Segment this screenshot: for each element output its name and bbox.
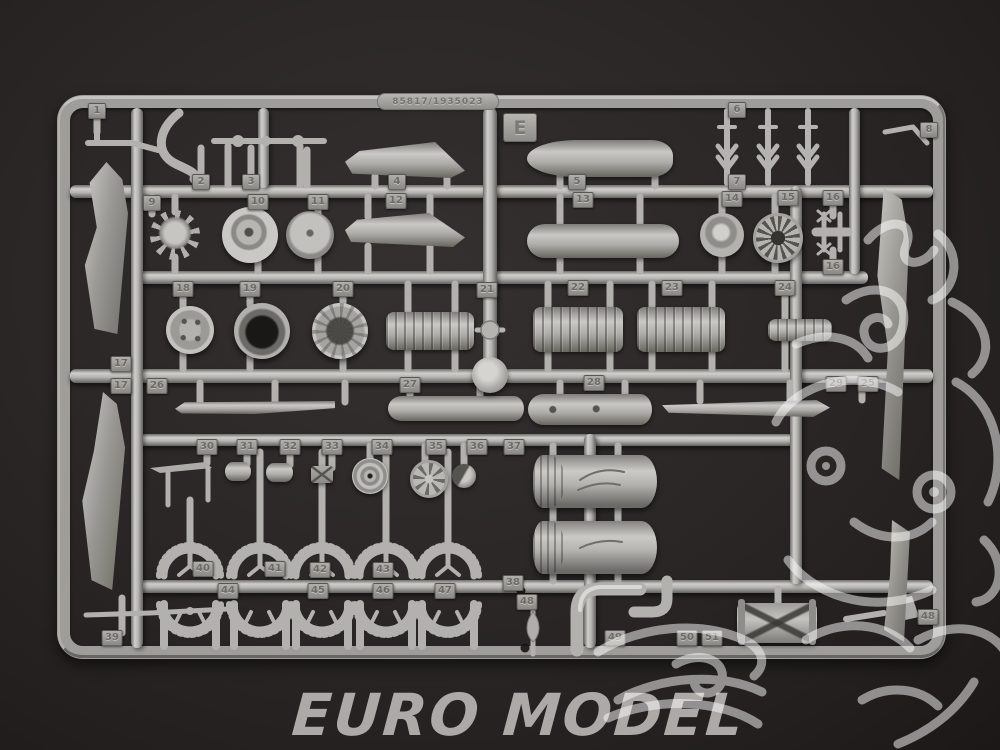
part-canopy-5 [527, 140, 673, 177]
part-number-tag: 33 [322, 439, 343, 455]
part-number-tag: 47 [435, 583, 456, 599]
part-number-tag: 43 [373, 562, 394, 578]
part-number-tag: 2 [192, 174, 210, 190]
part-number-tag: 17 [111, 378, 132, 394]
part-wheel-18 [166, 306, 214, 354]
part-hub-cap-11 [286, 211, 334, 259]
part-number-tag: 45 [308, 583, 329, 599]
part-number-tag: 32 [280, 439, 301, 455]
part-number-tag: 7 [728, 174, 746, 190]
part-number-tag: 34 [372, 439, 393, 455]
part-number-tag: 39 [102, 630, 123, 646]
part-number-tag: 38 [503, 575, 524, 591]
part-turbine-face-14 [700, 213, 744, 257]
part-gear-star-9 [150, 210, 200, 260]
part-number-tag: 12 [386, 193, 407, 209]
part-number-tag: 19 [240, 281, 261, 297]
part-number-tag: 21 [477, 282, 498, 298]
part-number-tag: 6 [728, 102, 746, 118]
part-wheel-35 [410, 460, 448, 498]
part-number-tag: 20 [333, 281, 354, 297]
part-number-tag: 30 [197, 439, 218, 455]
part-fan-ring-15 [753, 213, 803, 263]
part-number-tag: 16 [823, 259, 844, 275]
part-disc-36 [452, 464, 476, 488]
runner-col-b [849, 108, 860, 274]
part-number-tag: 40 [193, 561, 214, 577]
part-number-tag: 48 [918, 609, 939, 625]
part-number-tag: 11 [308, 194, 329, 210]
part-number-tag: 9 [143, 195, 161, 211]
part-number-tag: 17 [111, 356, 132, 372]
part-exhaust-nozzle-19 [234, 303, 290, 359]
part-number-tag: 41 [265, 561, 286, 577]
part-number-tag: 48 [517, 594, 538, 610]
part-engine-cylinder-23 [637, 307, 725, 352]
part-number-tag: 36 [467, 439, 488, 455]
part-engine-cylinder-22 [533, 307, 623, 352]
part-number-tag: 24 [775, 280, 796, 296]
part-number-tag: 8 [920, 122, 938, 138]
part-seat-51 [737, 603, 817, 643]
part-number-tag: 31 [237, 439, 258, 455]
part-number-tag: 35 [426, 439, 447, 455]
part-number-tag: 22 [568, 280, 589, 296]
mold-number-stamp: 85817/1935023 [377, 93, 499, 110]
part-number-tag: 4 [388, 174, 406, 190]
runner-row-6 [137, 580, 933, 593]
sprue-letter-tag: E [503, 113, 537, 142]
part-number-tag: 50 [677, 630, 698, 646]
shop-watermark-text: EURO MODEL [290, 681, 747, 749]
part-number-tag: 13 [573, 192, 594, 208]
part-pod-27 [388, 396, 524, 421]
part-tank-upper-37 [533, 455, 657, 508]
part-number-tag: 44 [218, 583, 239, 599]
part-spine-13 [527, 224, 679, 258]
part-number-tag: 42 [310, 562, 331, 578]
part-number-tag: 27 [400, 377, 421, 393]
sprue-photo: 1234567891011121314151616171718192021222… [0, 0, 1000, 750]
part-number-tag: 25 [858, 376, 879, 392]
part-number-tag: 15 [778, 190, 799, 206]
part-number-tag: 29 [826, 376, 847, 392]
part-number-tag: 37 [504, 439, 525, 455]
part-medallion-disc [472, 357, 508, 393]
part-number-tag: 3 [242, 174, 260, 190]
part-number-tag: 46 [373, 583, 394, 599]
part-number-tag: 18 [173, 281, 194, 297]
part-number-tag: 10 [248, 194, 269, 210]
part-box-33 [311, 466, 333, 483]
runner-col-left [131, 108, 143, 648]
part-cap-31 [225, 462, 251, 481]
part-number-tag: 1 [88, 103, 106, 119]
part-number-tag: 23 [662, 280, 683, 296]
part-cylinder-24 [768, 319, 832, 341]
part-number-tag: 26 [147, 378, 168, 394]
part-number-tag: 51 [702, 630, 723, 646]
part-number-tag: 14 [722, 191, 743, 207]
part-pod-28 [528, 394, 652, 425]
part-number-tag: 16 [823, 190, 844, 206]
part-number-tag: 49 [605, 630, 626, 646]
part-exhaust-nozzle-20 [312, 303, 368, 359]
part-cap-32 [266, 463, 293, 482]
part-wheel-10 [222, 207, 278, 263]
part-number-tag: 5 [568, 174, 586, 190]
part-wheel-34 [352, 458, 388, 494]
part-number-tag: 28 [584, 375, 605, 391]
runner-col-center [483, 108, 497, 372]
part-tank-lower-37 [533, 521, 657, 574]
part-engine-cylinder-21 [386, 312, 474, 350]
